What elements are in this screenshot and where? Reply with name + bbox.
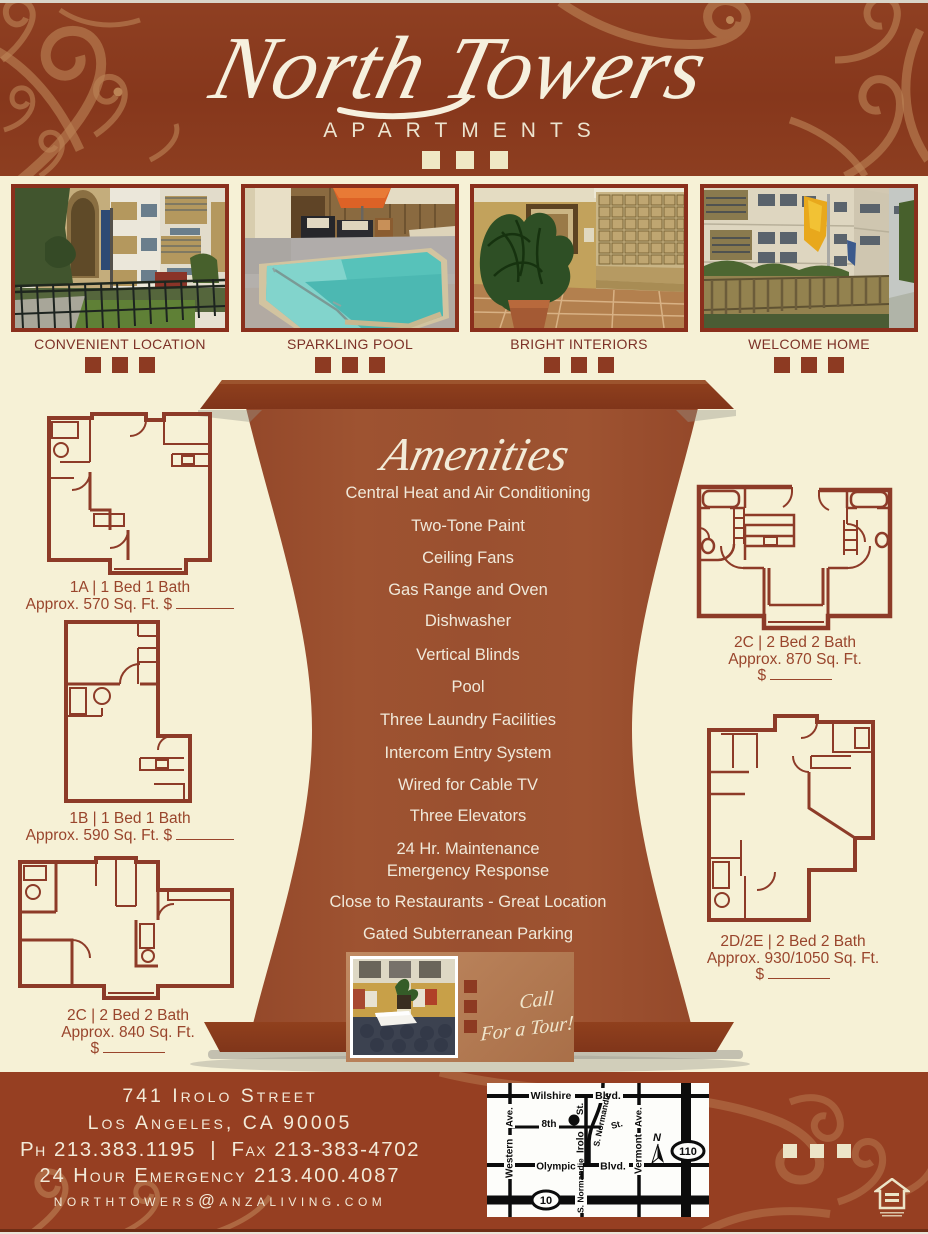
svg-text:8th: 8th xyxy=(542,1119,557,1130)
svg-text:Vermont: Vermont xyxy=(634,1133,645,1174)
svg-text:Call: Call xyxy=(519,987,555,1013)
svg-text:Wilshire: Wilshire xyxy=(531,1090,572,1102)
svg-text:Western: Western xyxy=(505,1139,516,1178)
svg-text:Olympic: Olympic xyxy=(536,1162,576,1173)
svg-text:S. Normandie: S. Normandie xyxy=(576,1158,586,1213)
svg-text:110: 110 xyxy=(679,1146,697,1158)
svg-text:10: 10 xyxy=(540,1195,552,1207)
svg-text:Ave.: Ave. xyxy=(634,1107,645,1127)
svg-text:Amenities: Amenities xyxy=(374,430,574,481)
svg-text:Ave.: Ave. xyxy=(505,1107,516,1127)
svg-text:N: N xyxy=(653,1132,662,1144)
svg-text:Irolo: Irolo xyxy=(576,1131,587,1153)
svg-text:For a Tour!: For a Tour! xyxy=(479,1012,574,1046)
svg-text:Blvd.: Blvd. xyxy=(600,1161,626,1173)
svg-text:St.: St. xyxy=(575,1103,586,1115)
